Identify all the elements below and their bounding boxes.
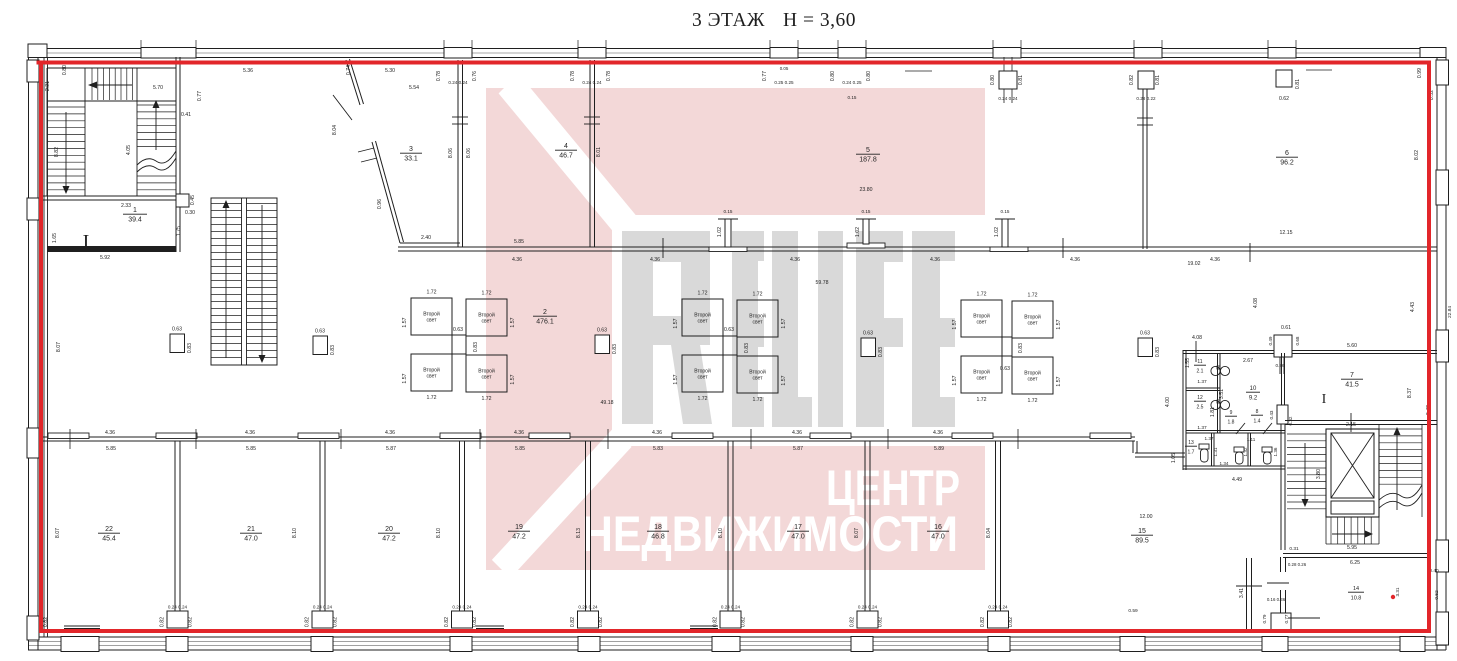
svg-text:33.1: 33.1 [404,156,418,163]
svg-text:0.31: 0.31 [1289,546,1299,552]
svg-text:4.05: 4.05 [126,145,132,155]
svg-text:9: 9 [1230,410,1233,416]
svg-text:18: 18 [654,524,662,531]
svg-text:0.63: 0.63 [724,327,734,333]
svg-text:1.72: 1.72 [426,395,436,401]
svg-text:0.82: 0.82 [305,617,311,627]
svg-text:0.15: 0.15 [1001,209,1010,214]
svg-text:0.26: 0.26 [1276,363,1285,368]
svg-text:89.5: 89.5 [1135,538,1149,545]
svg-text:4: 4 [564,143,568,150]
svg-text:0.82: 0.82 [598,617,604,627]
svg-text:7: 7 [1350,372,1354,379]
svg-text:5.85: 5.85 [514,239,524,245]
svg-text:187.8: 187.8 [859,157,877,164]
svg-text:0.24 0.24: 0.24 0.24 [721,605,741,610]
svg-text:8.82: 8.82 [54,147,60,157]
svg-text:0.62: 0.62 [1279,96,1289,102]
svg-text:1.72: 1.72 [752,397,762,403]
svg-text:0.83: 0.83 [612,344,618,354]
svg-text:8.10: 8.10 [292,528,298,538]
svg-text:8.10: 8.10 [718,528,724,538]
svg-text:0.82: 0.82 [444,617,450,627]
svg-text:0.81: 0.81 [1018,75,1024,85]
svg-text:0.80: 0.80 [830,71,836,81]
svg-text:0.82: 0.82 [741,617,747,627]
svg-text:2.40: 2.40 [421,235,431,241]
svg-text:0.76: 0.76 [472,71,478,81]
svg-text:0.96: 0.96 [377,199,383,209]
svg-text:0.83: 0.83 [330,345,336,355]
svg-text:96.2: 96.2 [1280,160,1294,167]
svg-text:1.8: 1.8 [1228,420,1235,426]
svg-text:1.02: 1.02 [855,227,861,237]
svg-text:4.49: 4.49 [1232,477,1242,483]
svg-text:1.72: 1.72 [481,396,491,402]
svg-text:0.77: 0.77 [762,71,768,81]
svg-text:Второй: Второй [694,368,711,375]
svg-text:0.82: 0.82 [980,617,986,627]
svg-text:1.72: 1.72 [481,291,491,297]
svg-text:I: I [83,231,90,253]
svg-text:5.87: 5.87 [386,446,396,452]
svg-text:12.15: 12.15 [1280,230,1293,236]
svg-text:20: 20 [385,526,393,533]
svg-text:4.36: 4.36 [790,257,800,263]
svg-text:1.37: 1.37 [1197,379,1207,385]
svg-text:0.05: 0.05 [780,66,789,71]
svg-text:1.72: 1.72 [752,292,762,298]
svg-text:4.36: 4.36 [512,257,522,263]
svg-text:8.04: 8.04 [332,125,338,135]
svg-text:0.82: 0.82 [472,617,478,627]
svg-text:0.30: 0.30 [185,210,195,216]
svg-text:5.89: 5.89 [934,446,944,452]
svg-text:0.63: 0.63 [172,327,182,333]
svg-text:0.32: 0.32 [1288,416,1293,425]
svg-text:5.83: 5.83 [653,446,663,452]
svg-text:1.57: 1.57 [510,374,516,384]
svg-text:3.80: 3.80 [1316,469,1322,479]
svg-text:Второй: Второй [749,313,766,320]
svg-text:49.18: 49.18 [601,400,614,406]
svg-text:0.49: 0.49 [1268,336,1273,345]
svg-text:1.57: 1.57 [673,318,679,328]
svg-text:свет: свет [752,320,763,326]
svg-text:8.06: 8.06 [448,148,454,158]
svg-text:1.81: 1.81 [1210,407,1216,417]
svg-text:5.92: 5.92 [100,255,110,261]
svg-text:23.80: 23.80 [860,187,873,193]
svg-text:1.57: 1.57 [952,375,958,385]
svg-text:НЕДВИЖИМОСТИ: НЕДВИЖИМОСТИ [582,506,958,562]
svg-text:17: 17 [794,524,802,531]
svg-text:8.02: 8.02 [1414,150,1420,160]
svg-text:0.24 0.24: 0.24 0.24 [452,605,472,610]
svg-text:46.8: 46.8 [651,534,665,541]
svg-text:0.63: 0.63 [453,327,463,333]
svg-text:16: 16 [934,524,942,531]
svg-text:0.82: 0.82 [160,617,166,627]
svg-text:0.82: 0.82 [188,617,194,627]
svg-text:3.51: 3.51 [1219,389,1225,399]
svg-text:1.75: 1.75 [176,226,182,236]
svg-text:2: 2 [543,309,547,316]
svg-text:Второй: Второй [973,369,990,376]
svg-text:свет: свет [976,320,987,326]
svg-text:свет: свет [697,375,708,381]
svg-text:свет: свет [752,376,763,382]
svg-text:1.57: 1.57 [402,373,408,383]
svg-text:1.57: 1.57 [1056,319,1062,329]
svg-text:0.25 0.25: 0.25 0.25 [774,80,794,85]
svg-text:476.1: 476.1 [536,319,554,326]
svg-text:1.05: 1.05 [1171,453,1177,463]
svg-text:0.24 0.24: 0.24 0.24 [168,605,188,610]
svg-text:3: 3 [409,146,413,153]
svg-text:0.82: 0.82 [1008,617,1014,627]
svg-text:0.24 0.24: 0.24 0.24 [988,605,1008,610]
svg-text:46.7: 46.7 [559,153,573,160]
svg-text:0.83: 0.83 [878,347,884,357]
svg-text:1.02: 1.02 [994,227,1000,237]
svg-text:4.36: 4.36 [930,257,940,263]
svg-text:0.83: 0.83 [473,342,479,352]
svg-text:8.04: 8.04 [986,528,992,538]
svg-text:41.5: 41.5 [1345,382,1359,389]
svg-text:0.78: 0.78 [570,71,576,81]
svg-text:4.00: 4.00 [1165,397,1171,407]
svg-text:0.81: 0.81 [1155,75,1161,85]
svg-text:Второй: Второй [1024,314,1041,321]
svg-text:1.57: 1.57 [402,317,408,327]
svg-text:2.21: 2.21 [45,81,51,91]
svg-text:1.34: 1.34 [1220,461,1229,466]
svg-text:свет: свет [426,374,437,380]
svg-text:0.83: 0.83 [1018,343,1024,353]
svg-text:0.24 0.24: 0.24 0.24 [582,80,602,85]
svg-text:8.37: 8.37 [1407,388,1413,398]
svg-text:8.01: 8.01 [596,147,602,157]
svg-text:свет: свет [976,376,987,382]
svg-text:15: 15 [1138,528,1146,535]
svg-text:1.4: 1.4 [1254,419,1261,425]
svg-text:1.72: 1.72 [426,290,436,296]
svg-text:1.72: 1.72 [1027,293,1037,299]
svg-text:0.82: 0.82 [43,617,49,627]
svg-text:1: 1 [133,207,137,214]
svg-text:1.7: 1.7 [1188,450,1195,456]
svg-text:I: I [1322,392,1327,407]
svg-text:6.25: 6.25 [1350,560,1360,566]
svg-text:0.80: 0.80 [62,65,68,75]
svg-text:4.08: 4.08 [1253,298,1259,308]
svg-text:0.24 0.24: 0.24 0.24 [313,605,333,610]
svg-text:0.63: 0.63 [1000,366,1010,372]
svg-text:5.54: 5.54 [409,85,419,91]
svg-text:9.2: 9.2 [1249,396,1258,402]
svg-text:13: 13 [1188,440,1194,446]
svg-text:14: 14 [1353,586,1359,592]
svg-text:свет: свет [697,319,708,325]
svg-text:0.82: 0.82 [570,617,576,627]
svg-text:свет: свет [1027,321,1038,327]
svg-text:0.15: 0.15 [848,95,857,100]
svg-text:0.52: 0.52 [1434,590,1440,600]
svg-text:0.16 0.36: 0.16 0.36 [1267,597,1286,602]
svg-text:5.95: 5.95 [1347,545,1357,551]
svg-text:0.81: 0.81 [1295,79,1301,89]
svg-text:0.77: 0.77 [1284,614,1289,623]
svg-text:1.32: 1.32 [1243,447,1248,456]
svg-text:0.63: 0.63 [1140,331,1150,337]
svg-text:0.15: 0.15 [862,209,871,214]
svg-text:4.36: 4.36 [792,430,802,436]
svg-text:3 ЭТАЖ: 3 ЭТАЖ [692,10,765,31]
svg-text:свет: свет [1027,377,1038,383]
svg-text:19.02: 19.02 [1188,261,1201,267]
svg-text:1.57: 1.57 [1056,376,1062,386]
svg-text:2.67: 2.67 [1243,358,1253,364]
svg-text:1.36: 1.36 [1273,447,1278,456]
svg-text:0.80: 0.80 [990,75,996,85]
svg-text:0.63: 0.63 [597,328,607,334]
svg-text:1.02: 1.02 [717,227,723,237]
svg-text:3.31: 3.31 [1395,587,1400,596]
svg-text:22.84: 22.84 [1447,306,1453,318]
svg-text:47.2: 47.2 [382,536,396,543]
svg-text:0.82: 0.82 [878,617,884,627]
svg-text:Второй: Второй [478,312,495,319]
svg-text:11: 11 [1197,359,1202,365]
svg-text:22: 22 [105,526,113,533]
svg-text:Второй: Второй [423,311,440,318]
svg-text:47.0: 47.0 [244,536,258,543]
svg-text:8.06: 8.06 [466,148,472,158]
svg-text:8.13: 8.13 [576,528,582,538]
svg-text:1.57: 1.57 [952,319,958,329]
svg-text:5: 5 [866,147,870,154]
svg-text:0.83: 0.83 [744,343,750,353]
svg-text:6: 6 [1285,150,1289,157]
svg-text:1.57: 1.57 [510,317,516,327]
svg-text:Второй: Второй [478,368,495,375]
svg-text:0.74: 0.74 [346,65,352,75]
svg-text:45.4: 45.4 [102,536,116,543]
svg-text:0.78: 0.78 [606,71,612,81]
svg-text:4.36: 4.36 [385,430,395,436]
svg-text:0.61: 0.61 [1281,325,1291,331]
svg-text:свет: свет [426,318,437,324]
svg-text:5.60: 5.60 [1347,343,1357,349]
svg-text:свет: свет [481,375,492,381]
svg-text:0.41: 0.41 [181,112,191,118]
svg-text:0.24 0.24: 0.24 0.24 [998,96,1018,101]
svg-text:1.11: 1.11 [1247,437,1256,442]
svg-text:5.85: 5.85 [106,446,116,452]
svg-text:0.82: 0.82 [850,617,856,627]
svg-text:0.43: 0.43 [1269,410,1274,419]
svg-text:Н = 3,60: Н = 3,60 [783,10,856,31]
svg-text:1.37: 1.37 [1197,425,1207,431]
svg-text:47.0: 47.0 [931,534,945,541]
svg-text:1.37: 1.37 [1205,436,1214,441]
svg-text:0.82: 0.82 [1129,75,1135,85]
svg-text:1.72: 1.72 [1027,398,1037,404]
svg-text:12.00: 12.00 [1140,514,1153,520]
svg-text:свет: свет [481,319,492,325]
svg-text:4.08: 4.08 [1192,335,1202,341]
svg-text:4.36: 4.36 [1070,257,1080,263]
svg-text:4.36: 4.36 [514,430,524,436]
svg-text:0.83: 0.83 [1155,347,1161,357]
svg-text:1.72: 1.72 [697,396,707,402]
svg-text:19: 19 [515,524,523,531]
svg-text:Второй: Второй [694,312,711,319]
svg-text:8.07: 8.07 [56,342,62,352]
svg-text:4.36: 4.36 [652,430,662,436]
svg-text:0.80: 0.80 [866,71,872,81]
svg-text:47.2: 47.2 [512,534,526,541]
svg-text:1.57: 1.57 [781,375,787,385]
svg-text:0.59: 0.59 [1128,608,1138,614]
svg-text:1.72: 1.72 [976,397,986,403]
svg-text:Второй: Второй [749,369,766,376]
svg-text:4.36: 4.36 [105,430,115,436]
svg-text:4.43: 4.43 [1410,302,1416,312]
svg-text:12: 12 [1197,395,1203,401]
svg-text:21: 21 [247,526,255,533]
svg-text:5.87: 5.87 [793,446,803,452]
svg-text:0.82: 0.82 [713,617,719,627]
svg-text:4.36: 4.36 [650,257,660,263]
svg-text:4.36: 4.36 [933,430,943,436]
svg-text:4.36: 4.36 [245,430,255,436]
svg-text:10.8: 10.8 [1351,596,1362,602]
svg-text:2.15: 2.15 [1346,422,1356,428]
svg-text:0.79: 0.79 [1262,614,1267,623]
svg-text:5.36: 5.36 [243,68,253,74]
svg-text:10: 10 [1250,386,1257,392]
svg-text:39.4: 39.4 [128,217,142,224]
svg-text:0.83: 0.83 [187,343,193,353]
svg-text:1.31: 1.31 [1213,447,1218,456]
svg-text:0.63: 0.63 [863,331,873,337]
svg-text:8.07: 8.07 [854,528,860,538]
svg-text:3.41: 3.41 [1239,588,1245,598]
svg-text:2.5: 2.5 [1197,405,1204,411]
svg-text:0.24 0.24: 0.24 0.24 [858,605,878,610]
svg-text:0.77: 0.77 [197,91,203,101]
svg-text:0.99: 0.99 [1417,68,1423,78]
svg-text:0.28 0.22: 0.28 0.22 [1136,96,1156,101]
svg-text:1.65: 1.65 [52,233,58,243]
svg-text:8: 8 [1256,409,1259,415]
svg-text:47.0: 47.0 [791,534,805,541]
svg-text:Второй: Второй [973,313,990,320]
svg-text:5.85: 5.85 [515,446,525,452]
svg-text:0.24 0.25: 0.24 0.25 [842,80,862,85]
svg-text:1.55: 1.55 [1185,358,1191,368]
svg-text:1.57: 1.57 [673,374,679,384]
svg-text:0.28 0.26: 0.28 0.26 [1288,562,1307,567]
svg-text:1.57: 1.57 [781,318,787,328]
svg-text:0.45: 0.45 [190,195,196,205]
svg-text:4.36: 4.36 [1210,257,1220,263]
svg-text:0.63: 0.63 [315,329,325,335]
svg-text:0.68: 0.68 [1295,336,1300,345]
svg-text:5.85: 5.85 [246,446,256,452]
svg-text:Второй: Второй [1024,370,1041,377]
svg-text:0.24 0.24: 0.24 0.24 [448,80,468,85]
svg-text:Второй: Второй [423,367,440,374]
svg-text:5.70: 5.70 [153,85,163,91]
svg-text:5.30: 5.30 [385,68,395,74]
svg-text:1.72: 1.72 [697,291,707,297]
svg-text:0.82: 0.82 [333,617,339,627]
svg-text:0.24 0.24: 0.24 0.24 [578,605,598,610]
svg-text:1.72: 1.72 [976,292,986,298]
svg-text:0.78: 0.78 [436,71,442,81]
svg-text:0.15: 0.15 [724,209,733,214]
svg-text:8.07: 8.07 [55,528,61,538]
svg-text:2.1: 2.1 [1197,369,1204,375]
svg-text:2.33: 2.33 [121,203,131,209]
svg-text:8.10: 8.10 [436,528,442,538]
svg-text:59.78: 59.78 [816,280,829,286]
